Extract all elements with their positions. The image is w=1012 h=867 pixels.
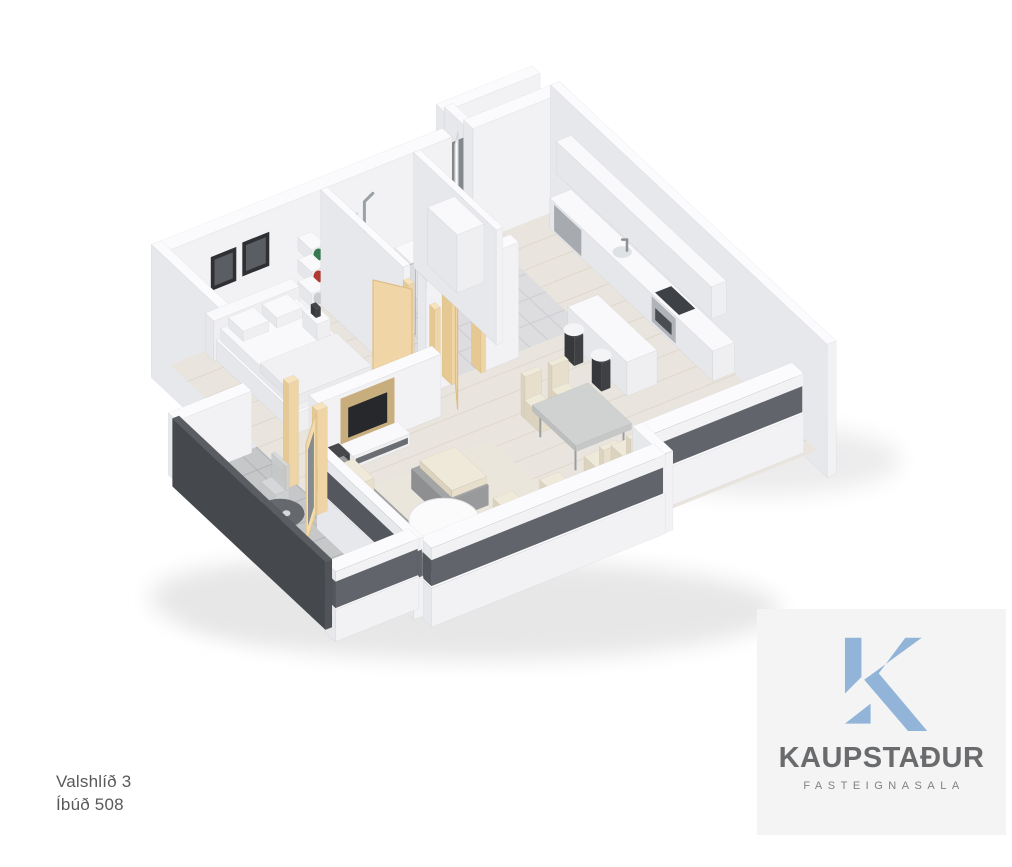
bar-stool-2-seat [591,349,612,362]
k-logo-chevron [864,638,927,731]
address-apartment: Íbúð 508 [56,793,131,816]
address-street: Valshlíð 3 [56,770,131,793]
agency-name: KAUPSTAÐUR [779,742,985,775]
bar-stool-1-seat [563,323,584,336]
k-logo-bar [844,638,860,694]
agency-tagline: FASTEIGNASALA [798,780,964,792]
address-block: Valshlíð 3 Íbúð 508 [56,770,131,817]
kaupstadur-k-logo-icon [834,630,930,736]
agency-logo-card: KAUPSTAÐUR FASTEIGNASALA [757,609,1006,835]
page: Valshlíð 3 Íbúð 508 KAUPSTAÐUR FASTEIGNA… [0,0,1012,867]
kitchen-sink [613,246,632,258]
k-logo-triangle [844,704,870,724]
